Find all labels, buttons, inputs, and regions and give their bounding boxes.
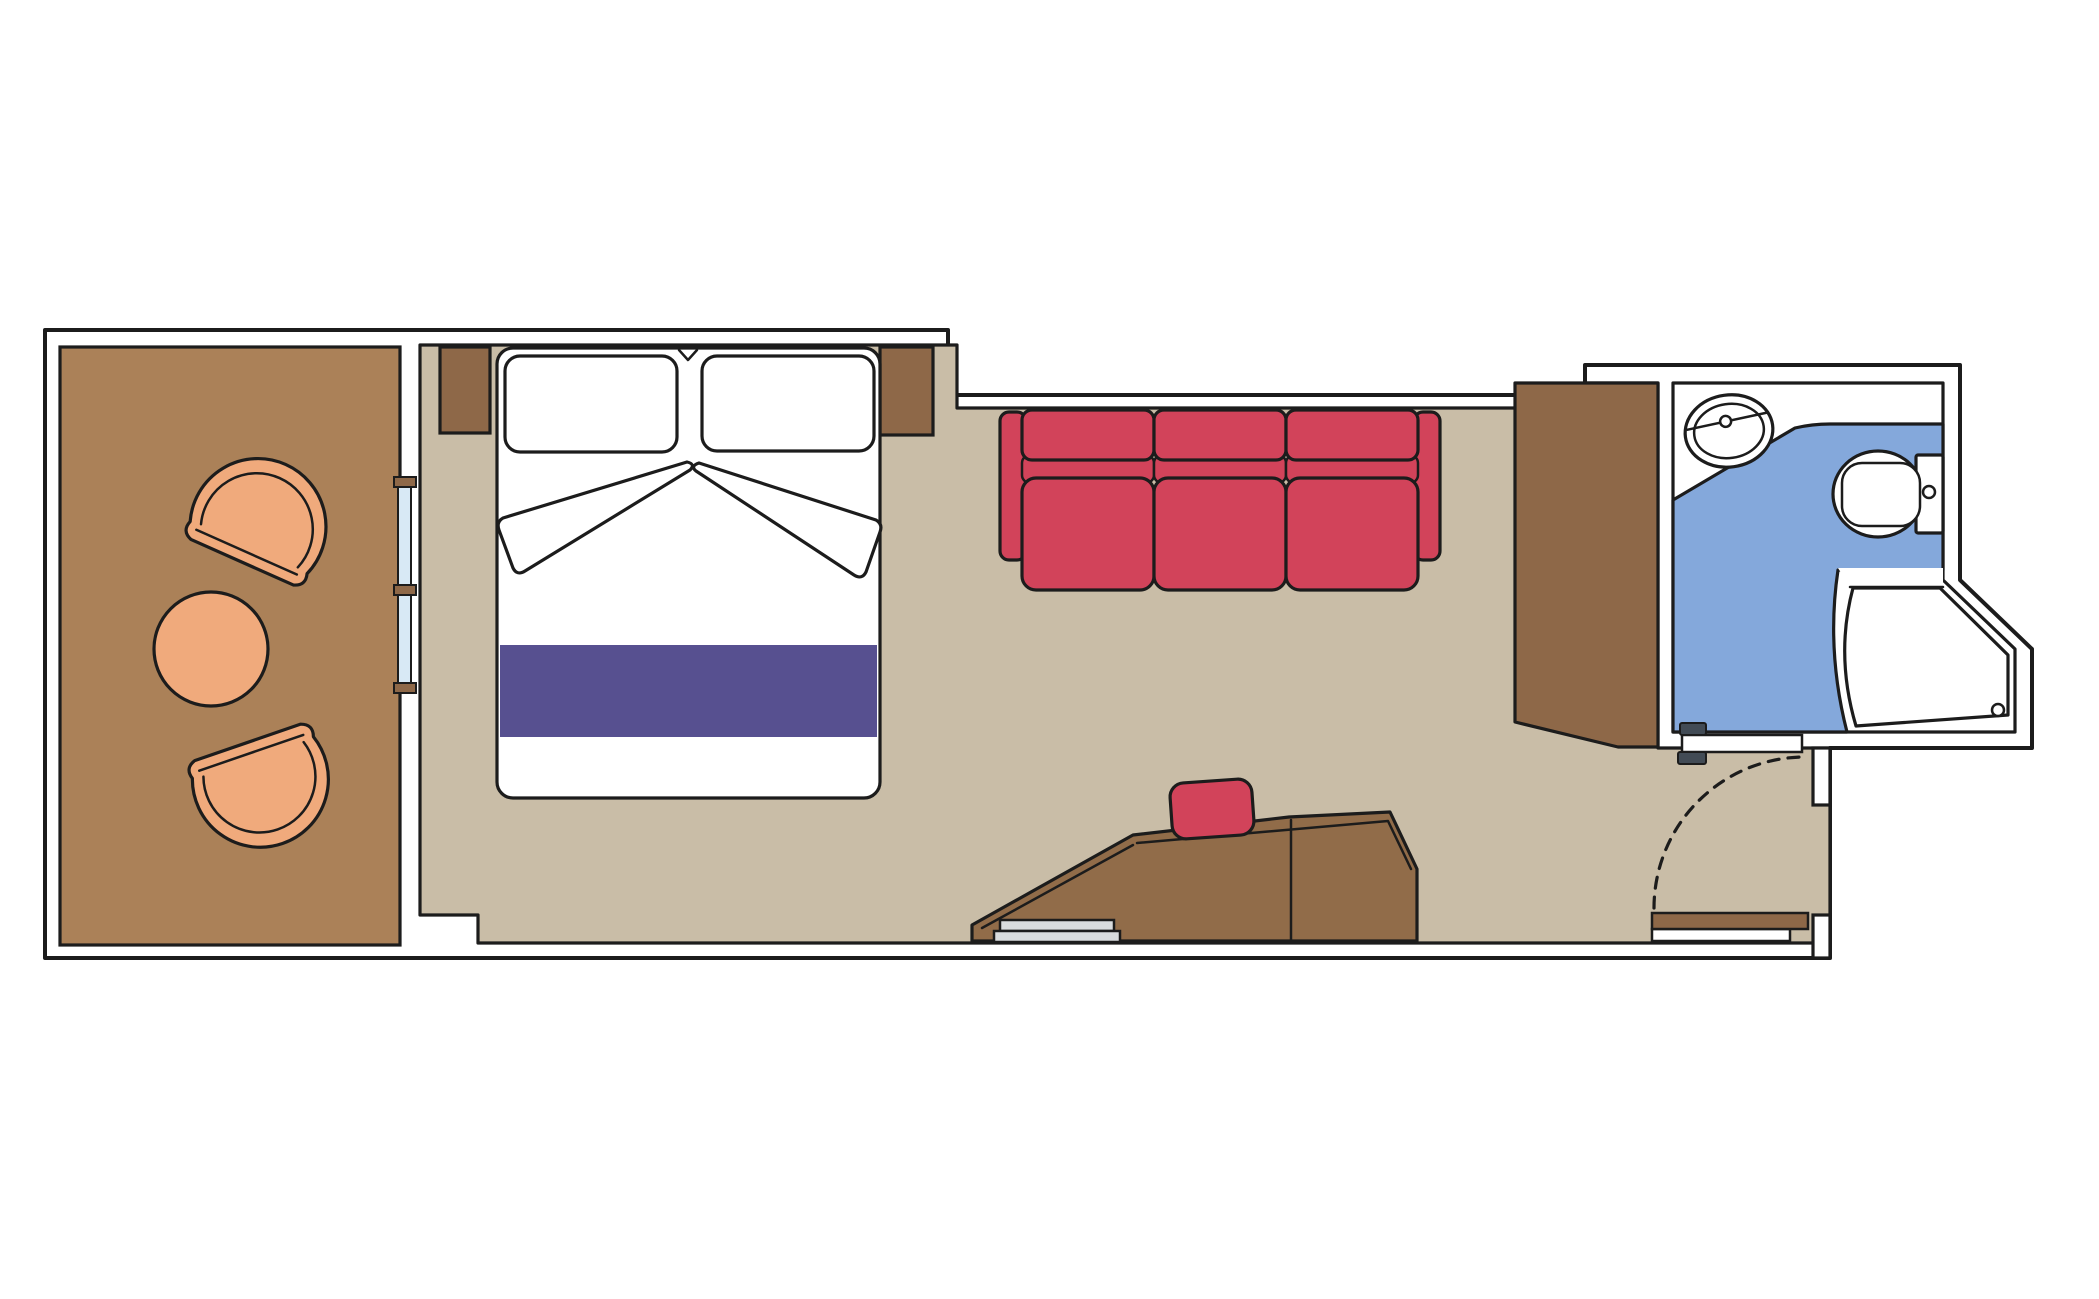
glass-panel: [398, 595, 411, 683]
toilet: [1833, 451, 1943, 537]
sofa-seat-cushion: [1154, 478, 1286, 590]
pillow-left: [505, 356, 677, 452]
door-leaf: [1682, 735, 1802, 752]
entry-door-threshold: [1652, 929, 1790, 941]
nightstand-left: [440, 347, 490, 433]
sofa-back-cushion: [1154, 410, 1286, 460]
shower-drain: [1992, 704, 2004, 716]
sofa-seat-cushion: [1286, 478, 1418, 590]
sofa-back-cushion: [1286, 410, 1418, 460]
bed-runner: [500, 645, 877, 737]
nightstand-right: [880, 347, 933, 435]
door-jamb: [394, 477, 416, 487]
door-handle: [1678, 752, 1706, 764]
sofa: [1000, 410, 1440, 590]
glass-panel: [398, 487, 411, 585]
sofa-seat-cushion: [1022, 478, 1154, 590]
pillow-right: [702, 356, 874, 451]
desk-step-tray: [994, 931, 1120, 942]
wardrobe: [1515, 383, 1658, 747]
toilet-seat: [1842, 463, 1920, 526]
floor-plan-page: [0, 0, 2099, 1299]
door-handle: [1680, 723, 1706, 735]
balcony-table: [154, 592, 268, 706]
door-jamb: [394, 683, 416, 693]
entry-wall-stub: [1813, 748, 1830, 805]
desk-step-tray: [1000, 920, 1114, 931]
entry-door-leaf: [1652, 913, 1808, 929]
entry-door-jamb: [1813, 915, 1830, 958]
door-jamb: [394, 585, 416, 595]
bed-area: [440, 347, 933, 798]
sofa-back-cushion: [1022, 410, 1154, 460]
flush-button: [1923, 486, 1935, 498]
floor-plan-drawing: [0, 0, 2099, 1299]
stool: [1169, 778, 1255, 840]
